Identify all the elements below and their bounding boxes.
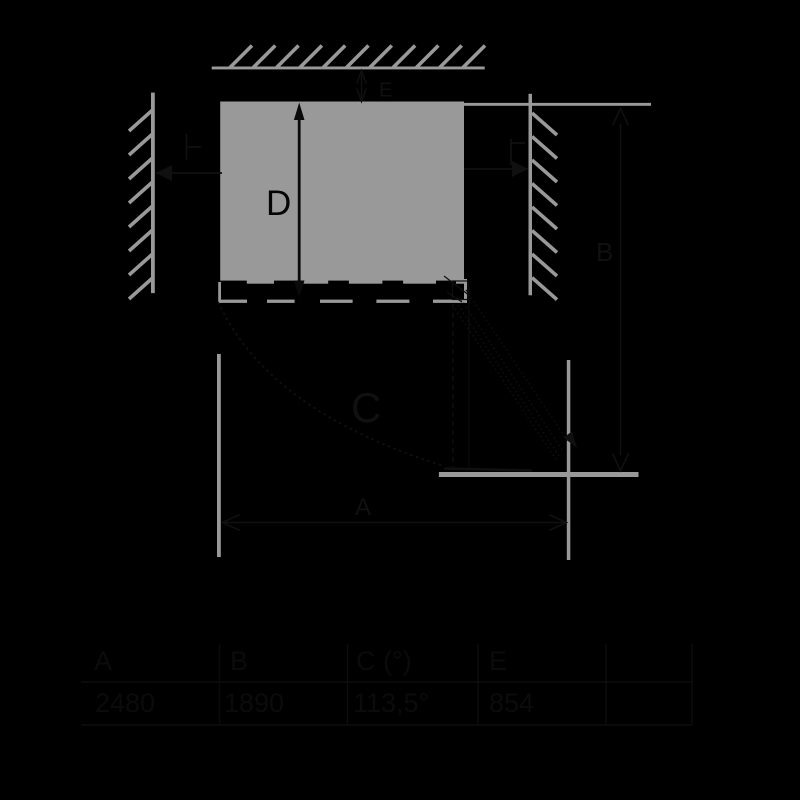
svg-text:854: 854 <box>489 688 534 718</box>
svg-text:B: B <box>230 646 248 676</box>
svg-text:A: A <box>355 494 371 521</box>
svg-text:1890: 1890 <box>224 688 284 718</box>
svg-text:113,5°: 113,5° <box>353 688 429 718</box>
svg-text:E: E <box>379 80 392 102</box>
svg-text:E: E <box>489 646 507 676</box>
svg-text:A: A <box>94 646 112 676</box>
svg-text:2480: 2480 <box>95 688 155 718</box>
svg-text:C (°): C (°) <box>356 646 412 676</box>
svg-text:C: C <box>351 384 381 431</box>
svg-text:D: D <box>266 184 291 223</box>
svg-text:B: B <box>596 237 613 267</box>
